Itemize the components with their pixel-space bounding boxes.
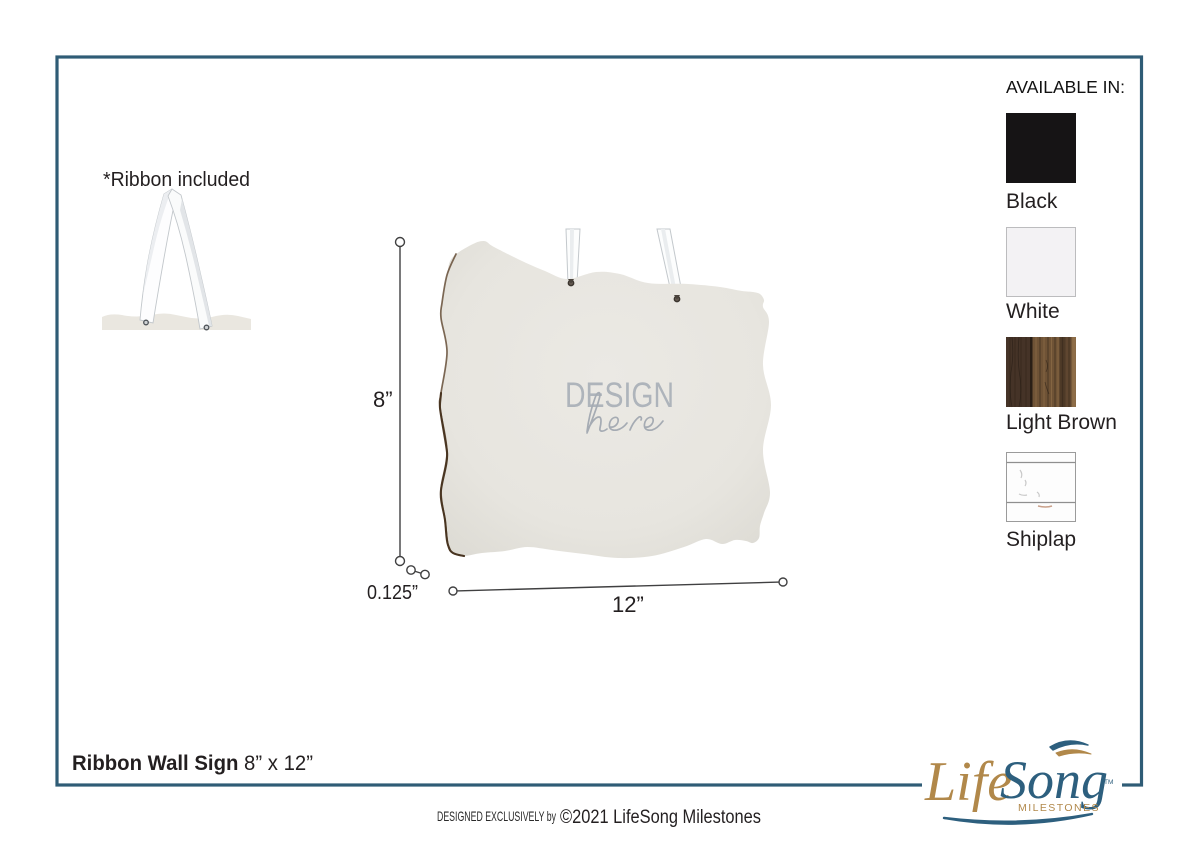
svg-text:White: White — [1006, 300, 1060, 323]
svg-text:12”: 12” — [612, 592, 644, 617]
svg-text:TM: TM — [1104, 779, 1113, 786]
svg-text:DESIGN: DESIGN — [565, 376, 674, 415]
svg-text:Ribbon Wall Sign 8” x 12”: Ribbon Wall Sign 8” x 12” — [72, 752, 313, 775]
svg-text:AVAILABLE IN:: AVAILABLE IN: — [1006, 77, 1125, 97]
svg-text:©2021 LifeSong Milestones: ©2021 LifeSong Milestones — [560, 806, 761, 828]
svg-text:Black: Black — [1006, 190, 1058, 213]
svg-text:0.125”: 0.125” — [367, 581, 418, 604]
svg-text:Light Brown: Light Brown — [1006, 411, 1117, 434]
svg-text:Shiplap: Shiplap — [1006, 528, 1076, 551]
svg-text:Life: Life — [924, 751, 1012, 813]
svg-text:8”: 8” — [373, 387, 393, 412]
svg-text:Song: Song — [1000, 750, 1108, 810]
svg-text:MILESTONES: MILESTONES — [1018, 802, 1100, 814]
svg-text:DESIGNED EXCLUSIVELY by: DESIGNED EXCLUSIVELY by — [437, 808, 556, 824]
svg-text:*Ribbon included: *Ribbon included — [103, 168, 250, 191]
